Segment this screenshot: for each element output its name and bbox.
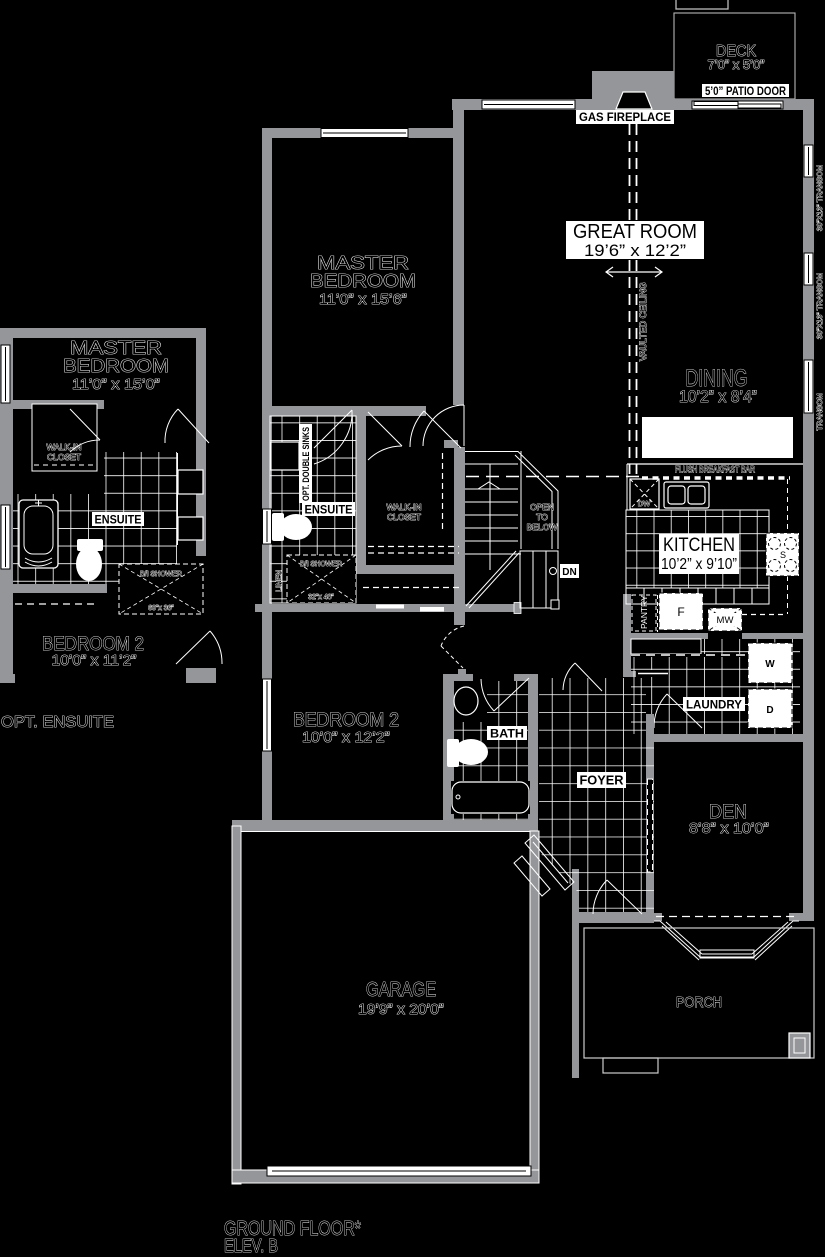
svg-text:19’9” x 20’0”: 19’9” x 20’0” bbox=[358, 1001, 444, 1018]
svg-text:OPT. DOUBLE SINKS: OPT. DOUBLE SINKS bbox=[301, 427, 312, 501]
svg-text:LAUNDRY: LAUNDRY bbox=[686, 698, 742, 712]
svg-text:10’0” x 11’2”: 10’0” x 11’2” bbox=[52, 652, 137, 669]
svg-text:10’2” x 9’10”: 10’2” x 9’10” bbox=[661, 556, 737, 573]
svg-text:B/I SHOWER: B/I SHOWER bbox=[300, 561, 342, 568]
svg-text:DN: DN bbox=[562, 567, 576, 578]
svg-text:32”x 48”: 32”x 48” bbox=[308, 594, 334, 601]
svg-text:W: W bbox=[765, 659, 775, 670]
svg-text:30”X13” TRANSOM: 30”X13” TRANSOM bbox=[815, 165, 824, 231]
svg-text:D: D bbox=[766, 705, 773, 716]
svg-text:F: F bbox=[677, 605, 684, 619]
svg-text:PORCH: PORCH bbox=[676, 994, 722, 1011]
svg-text:LINEN: LINEN bbox=[274, 570, 283, 592]
svg-text:MASTER: MASTER bbox=[70, 338, 162, 358]
svg-text:BEDROOM: BEDROOM bbox=[63, 356, 169, 376]
svg-text:DW: DW bbox=[638, 499, 651, 508]
svg-text:8’8” x 10’0”: 8’8” x 10’0” bbox=[689, 820, 769, 837]
svg-text:VAULTED CEILING: VAULTED CEILING bbox=[638, 282, 648, 361]
svg-text:MASTER: MASTER bbox=[317, 253, 409, 273]
svg-text:OPT. ENSUITE: OPT. ENSUITE bbox=[1, 714, 114, 731]
svg-text:PANTRY: PANTRY bbox=[639, 595, 649, 629]
svg-text:7’0” x 5’0”: 7’0” x 5’0” bbox=[708, 58, 765, 72]
svg-text:GAS FIREPLACE: GAS FIREPLACE bbox=[579, 110, 671, 124]
svg-text:BATH: BATH bbox=[490, 727, 524, 741]
svg-text:FOYER: FOYER bbox=[580, 773, 625, 788]
svg-text:ENSUITE: ENSUITE bbox=[305, 503, 353, 517]
svg-text:CLOSET: CLOSET bbox=[47, 452, 81, 462]
svg-text:KITCHEN: KITCHEN bbox=[663, 535, 735, 556]
svg-text:CLOSET: CLOSET bbox=[387, 512, 421, 522]
svg-text:TRANSOM: TRANSOM bbox=[815, 393, 824, 431]
svg-text:MW: MW bbox=[717, 615, 734, 626]
svg-text:OPEN: OPEN bbox=[530, 502, 554, 512]
svg-text:BEDROOM 2: BEDROOM 2 bbox=[293, 710, 399, 731]
svg-text:S: S bbox=[780, 550, 786, 560]
svg-text:BEDROOM: BEDROOM bbox=[310, 271, 416, 291]
svg-text:TO: TO bbox=[536, 512, 548, 522]
svg-text:5’0” PATIO DOOR: 5’0” PATIO DOOR bbox=[705, 86, 787, 98]
svg-text:60”x 36”: 60”x 36” bbox=[148, 605, 174, 612]
svg-text:FLUSH BREAKFAST BAR: FLUSH BREAKFAST BAR bbox=[675, 465, 755, 476]
svg-text:11’0” x 15’0”: 11’0” x 15’0” bbox=[72, 376, 160, 393]
svg-text:GARAGE: GARAGE bbox=[366, 979, 436, 1001]
svg-text:30”X13” TRANSOM: 30”X13” TRANSOM bbox=[815, 273, 824, 339]
svg-text:10’0” x 12’2”: 10’0” x 12’2” bbox=[302, 729, 390, 746]
svg-text:B/I SHOWER: B/I SHOWER bbox=[140, 571, 182, 578]
svg-text:ENSUITE: ENSUITE bbox=[95, 513, 142, 527]
svg-text:ELEV. B: ELEV. B bbox=[224, 1236, 278, 1256]
svg-text:10’2” x 8’4”: 10’2” x 8’4” bbox=[679, 387, 757, 406]
svg-text:WALK-IN: WALK-IN bbox=[386, 502, 421, 512]
svg-text:BELOW: BELOW bbox=[527, 522, 558, 532]
svg-text:GREAT ROOM: GREAT ROOM bbox=[573, 221, 697, 243]
svg-text:19’6” x 12’2”: 19’6” x 12’2” bbox=[584, 241, 686, 260]
svg-text:11’0” x 15’6”: 11’0” x 15’6” bbox=[319, 291, 407, 308]
